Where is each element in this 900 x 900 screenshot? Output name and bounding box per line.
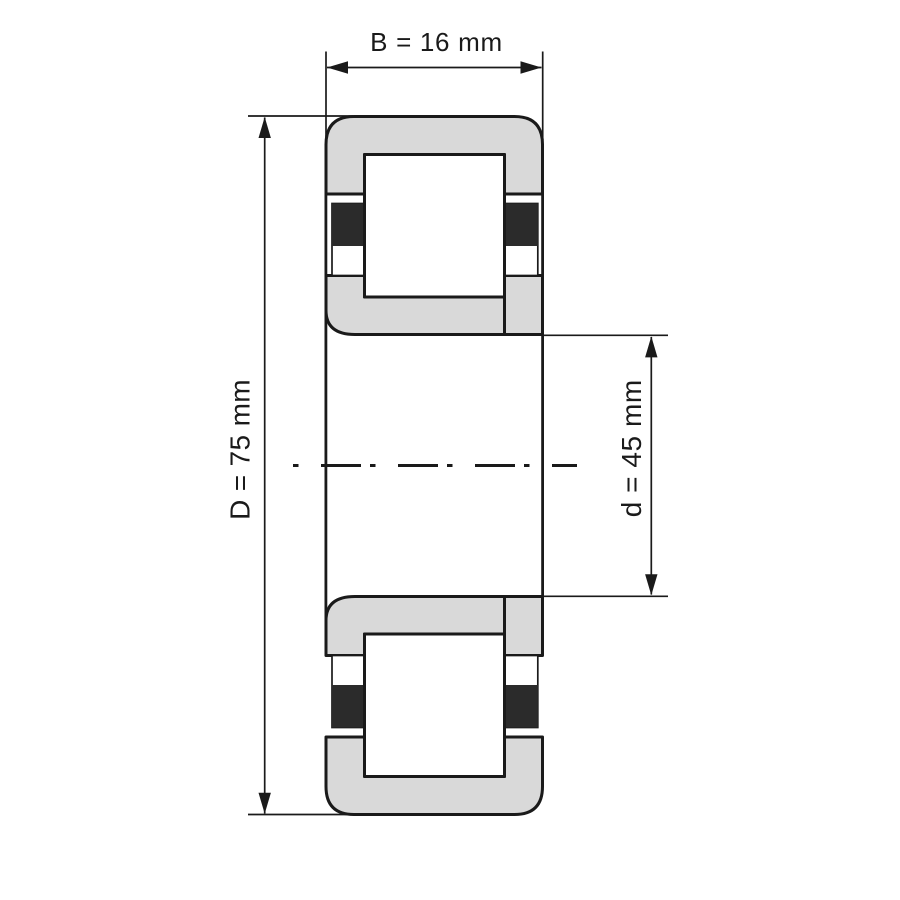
- svg-text:d = 45 mm: d = 45 mm: [616, 379, 647, 517]
- svg-text:B = 16 mm: B = 16 mm: [370, 27, 503, 57]
- svg-text:D = 75 mm: D = 75 mm: [225, 379, 256, 520]
